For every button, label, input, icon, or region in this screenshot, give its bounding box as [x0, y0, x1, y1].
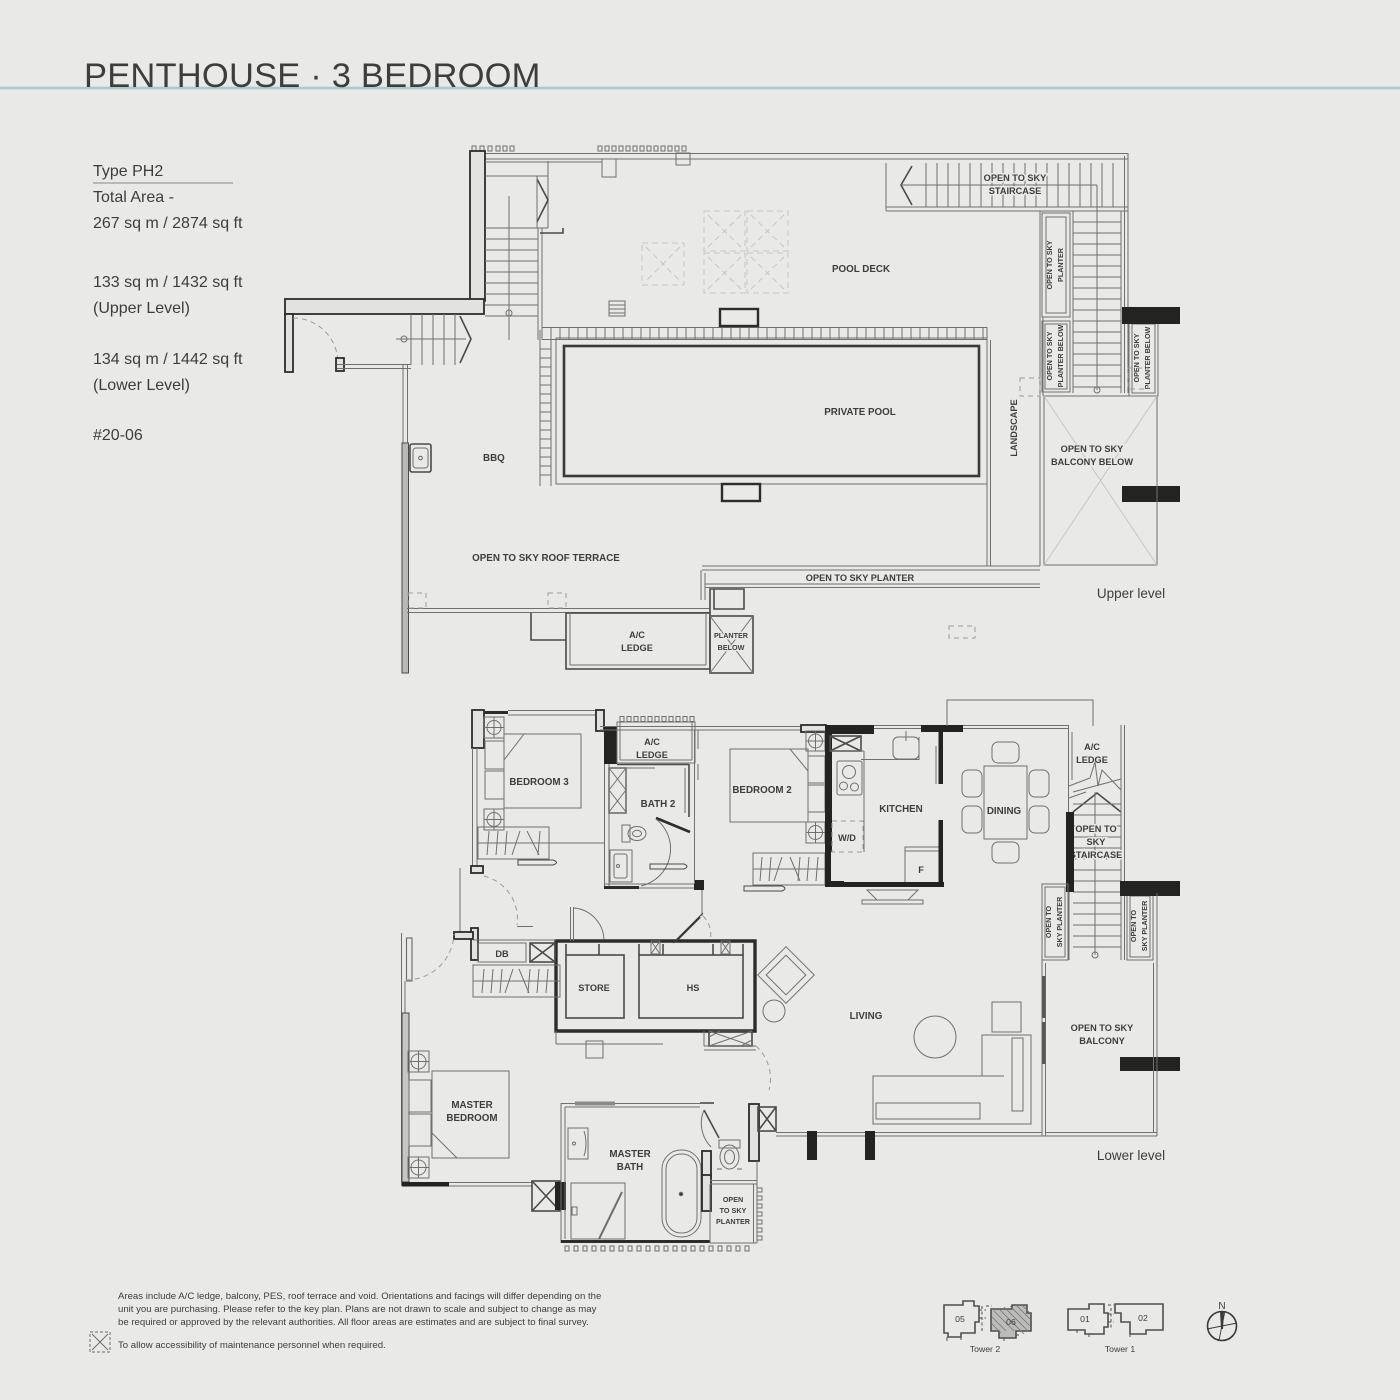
- svg-text:06: 06: [1006, 1317, 1016, 1327]
- svg-text:OPEN TO SKY: OPEN TO SKY: [1061, 444, 1124, 454]
- svg-text:BEDROOM 2: BEDROOM 2: [732, 785, 792, 796]
- svg-text:To allow accessibility of main: To allow accessibility of maintenance pe…: [118, 1340, 386, 1351]
- svg-text:N: N: [1218, 1301, 1225, 1312]
- svg-text:OPEN TO SKY: OPEN TO SKY: [1132, 333, 1141, 382]
- svg-text:PRIVATE POOL: PRIVATE POOL: [824, 407, 896, 418]
- svg-text:OPEN TO: OPEN TO: [1044, 905, 1053, 938]
- svg-text:MASTER: MASTER: [609, 1149, 650, 1160]
- svg-text:05: 05: [955, 1314, 965, 1324]
- svg-text:OPEN: OPEN: [723, 1195, 743, 1204]
- svg-text:POOL DECK: POOL DECK: [832, 264, 890, 275]
- svg-text:LEDGE: LEDGE: [636, 750, 668, 760]
- svg-text:LANDSCAPE: LANDSCAPE: [1009, 399, 1019, 456]
- svg-text:BATH 2: BATH 2: [641, 799, 676, 810]
- svg-text:OPEN TO: OPEN TO: [1075, 824, 1116, 834]
- svg-text:STAIRCASE: STAIRCASE: [1070, 850, 1122, 860]
- svg-text:STORE: STORE: [578, 983, 609, 993]
- svg-text:BALCONY: BALCONY: [1079, 1036, 1124, 1046]
- svg-text:BALCONY BELOW: BALCONY BELOW: [1051, 457, 1133, 467]
- svg-text:TO SKY: TO SKY: [720, 1206, 747, 1215]
- svg-text:SKY PLANTER: SKY PLANTER: [1140, 900, 1149, 951]
- svg-text:OPEN TO SKY: OPEN TO SKY: [1045, 331, 1054, 380]
- svg-text:MASTER: MASTER: [451, 1100, 492, 1111]
- svg-text:LEDGE: LEDGE: [1076, 755, 1108, 765]
- svg-text:PENTHOUSE · 3 BEDROOM: PENTHOUSE · 3 BEDROOM: [84, 57, 541, 95]
- svg-text:A/C: A/C: [629, 630, 645, 640]
- svg-text:(Upper Level): (Upper Level): [93, 300, 190, 317]
- svg-text:BBQ: BBQ: [483, 453, 505, 464]
- svg-text:HS: HS: [687, 983, 700, 993]
- svg-text:OPEN TO: OPEN TO: [1129, 909, 1138, 942]
- svg-text:134 sq m / 1442 sq ft: 134 sq m / 1442 sq ft: [93, 351, 243, 368]
- svg-text:A/C: A/C: [1084, 742, 1100, 752]
- svg-text:Total Area -: Total Area -: [93, 189, 174, 206]
- svg-text:SKY PLANTER: SKY PLANTER: [1055, 896, 1064, 947]
- svg-text:OPEN TO SKY PLANTER: OPEN TO SKY PLANTER: [806, 573, 915, 583]
- svg-text:STAIRCASE: STAIRCASE: [989, 186, 1041, 196]
- svg-text:PLANTER BELOW: PLANTER BELOW: [1056, 324, 1065, 387]
- svg-text:(Lower Level): (Lower Level): [93, 377, 190, 394]
- svg-text:unit you are purchasing. Pleas: unit you are purchasing. Please refer to…: [118, 1304, 597, 1315]
- svg-text:PLANTER: PLANTER: [1056, 247, 1065, 282]
- svg-text:BELOW: BELOW: [718, 643, 745, 652]
- svg-text:Lower level: Lower level: [1097, 1148, 1165, 1163]
- svg-text:F: F: [918, 865, 924, 875]
- svg-text:LEDGE: LEDGE: [621, 643, 653, 653]
- svg-text:Areas include A/C ledge, balco: Areas include A/C ledge, balcony, PES, r…: [118, 1291, 601, 1302]
- svg-text:OPEN TO SKY: OPEN TO SKY: [984, 173, 1047, 183]
- svg-text:267 sq m / 2874 sq ft: 267 sq m / 2874 sq ft: [93, 215, 243, 232]
- svg-text:Upper level: Upper level: [1097, 586, 1165, 601]
- svg-text:OPEN TO SKY: OPEN TO SKY: [1071, 1023, 1134, 1033]
- svg-text:PLANTER: PLANTER: [714, 631, 749, 640]
- svg-text:DB: DB: [495, 949, 509, 959]
- svg-text:BEDROOM 3: BEDROOM 3: [509, 777, 569, 788]
- svg-text:#20-06: #20-06: [93, 427, 143, 444]
- svg-text:OPEN TO SKY: OPEN TO SKY: [1045, 240, 1054, 289]
- svg-text:LIVING: LIVING: [850, 1011, 883, 1022]
- svg-text:PLANTER: PLANTER: [716, 1217, 751, 1226]
- svg-text:Type PH2: Type PH2: [93, 163, 163, 180]
- svg-text:SKY: SKY: [1087, 837, 1106, 847]
- svg-text:Tower 2: Tower 2: [970, 1344, 1001, 1354]
- svg-text:KITCHEN: KITCHEN: [879, 804, 923, 815]
- svg-text:DINING: DINING: [987, 806, 1022, 817]
- svg-text:BATH: BATH: [617, 1162, 643, 1173]
- svg-text:133 sq m / 1432 sq ft: 133 sq m / 1432 sq ft: [93, 274, 243, 291]
- svg-text:BEDROOM: BEDROOM: [446, 1113, 497, 1124]
- svg-text:Tower 1: Tower 1: [1105, 1344, 1136, 1354]
- svg-text:02: 02: [1138, 1313, 1148, 1323]
- svg-text:be required or approved by the: be required or approved by the relevant …: [118, 1317, 589, 1328]
- svg-text:01: 01: [1080, 1314, 1090, 1324]
- svg-text:OPEN TO SKY ROOF TERRACE: OPEN TO SKY ROOF TERRACE: [472, 553, 620, 564]
- svg-text:A/C: A/C: [644, 737, 660, 747]
- svg-text:W/D: W/D: [838, 833, 856, 843]
